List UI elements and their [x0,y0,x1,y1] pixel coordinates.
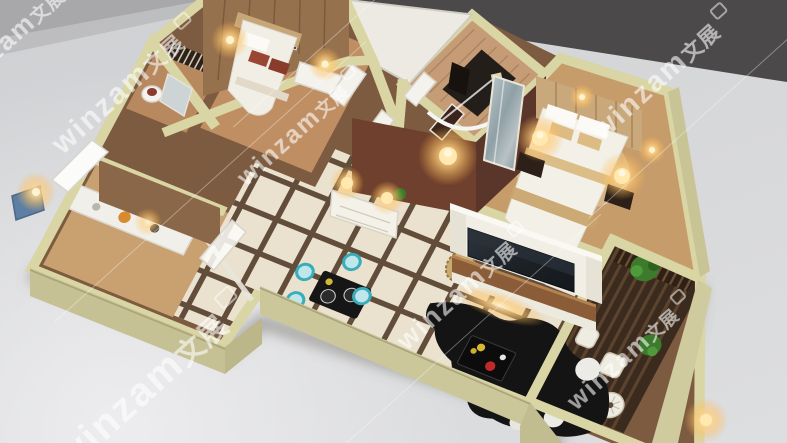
wall-sconce [569,84,595,110]
architectural-model-photo [0,0,787,443]
kitchen-lamp [134,208,162,236]
pilaster [586,256,602,304]
hall-lamp [418,126,478,186]
bedside-lamp [598,152,646,200]
pilaster [450,209,466,257]
bedside-lamp [516,114,564,162]
console-lamp [330,166,364,200]
console-lamp [370,181,404,215]
balcony-lamp [684,398,728,442]
hall-sconce [308,47,342,81]
wall-sconce [638,136,666,164]
bedroom2-lamp [211,21,249,59]
wall-lamp [16,172,56,212]
model-photo-stage: winzam文展 winzam文展 winzam文展 winzam文展 winz… [0,0,787,443]
